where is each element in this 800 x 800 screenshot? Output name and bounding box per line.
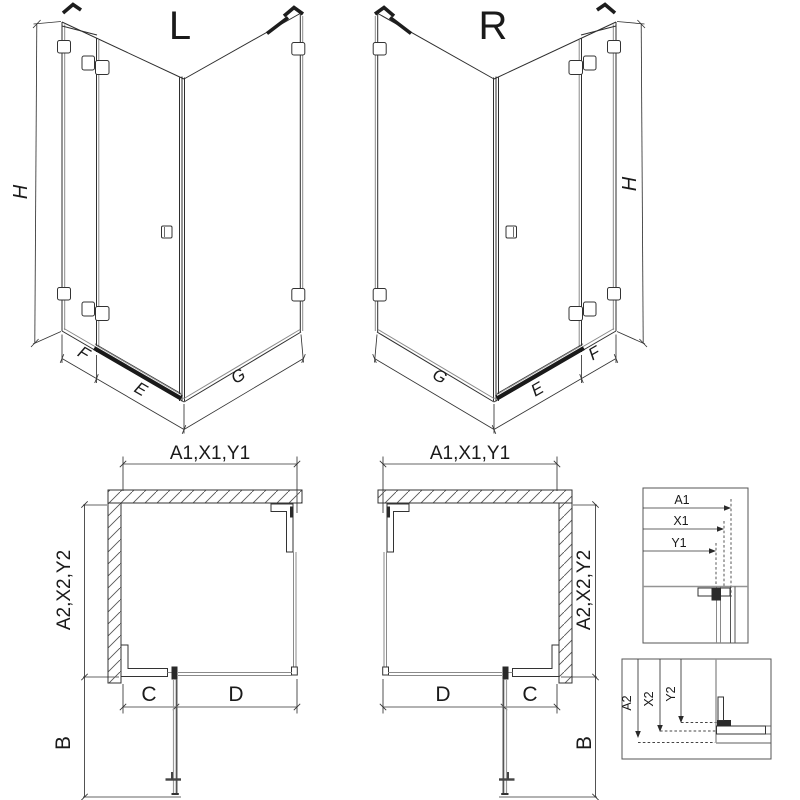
height-dimension [31,20,61,347]
handle-knob [162,226,173,238]
side-panel-rear-edge [300,13,302,332]
plan-left-b-label: B [52,736,75,750]
bottom-rail-section [716,659,771,743]
iso-left-g-label: G [228,365,249,388]
plan-right-width-label: A1,X1,Y1 [430,443,510,464]
detail-y1-label: Y1 [671,536,686,550]
plan-left-side-wall-hatch [108,503,121,683]
front-glass-panel [178,673,292,676]
iso-left-e-label: E [131,378,151,400]
detail-box-depth: A2 X2 Y2 [620,659,771,759]
detail-a1-label: A1 [674,493,689,507]
detail-box-width: A1 X1 Y1 [643,488,748,643]
iso-enclosure-linework [31,5,305,434]
plan-right-depth-label: A2,X2,Y2 [574,550,595,630]
wall-brackets [58,41,305,302]
detail-a2-label: A2 [620,695,634,710]
drawing-sheet: L R H H F E G F E G [0,0,800,800]
iso-left-height-label: H [10,184,32,199]
detail-y2-label: Y2 [664,686,678,701]
iso-right-e-label: E [528,378,548,400]
plan-right-b-label: B [573,736,596,750]
hinge-top [82,56,109,75]
iso-left-variant-label: L [169,4,191,48]
plan-left-c-label: C [141,683,156,706]
plan-right-c-label: C [522,683,537,706]
plan-right-d-label: D [435,683,450,706]
hinge-bottom [82,302,109,321]
detail-x2-label: X2 [642,691,656,706]
plan-left-width-label: A1,X1,Y1 [170,443,250,464]
top-corner-bracket [63,5,81,14]
iso-left-f-label: F [75,342,95,364]
door-pivot-block [172,667,178,680]
header-bar [62,26,97,35]
technical-drawing: L R H H F E G F E G [0,0,800,800]
iso-right-f-label: F [585,342,605,364]
plan-right-side-wall-hatch [559,503,572,683]
open-door-leaf [166,679,182,794]
back-panel [62,22,65,331]
corner-profile [180,77,185,402]
plan-depth-dimension [81,501,181,800]
plan-right-top-wall-hatch [378,490,572,503]
wall-profile-section [698,587,735,644]
detail-x1-label: X1 [673,514,688,528]
support-arm [267,18,288,34]
iso-right-g-label: G [429,365,450,388]
iso-right-variant-label: R [479,4,508,48]
wall-profile-top [271,504,294,552]
iso-right-height-label: H [619,176,641,191]
iso-enclosure-linework-right [373,5,647,434]
plan-left-d-label: D [228,683,243,706]
side-glass-panel [292,552,298,675]
plan-left-top-wall-hatch [108,490,302,503]
wall-profile-bottom [121,645,172,677]
plan-left-depth-label: A2,X2,Y2 [54,550,75,630]
